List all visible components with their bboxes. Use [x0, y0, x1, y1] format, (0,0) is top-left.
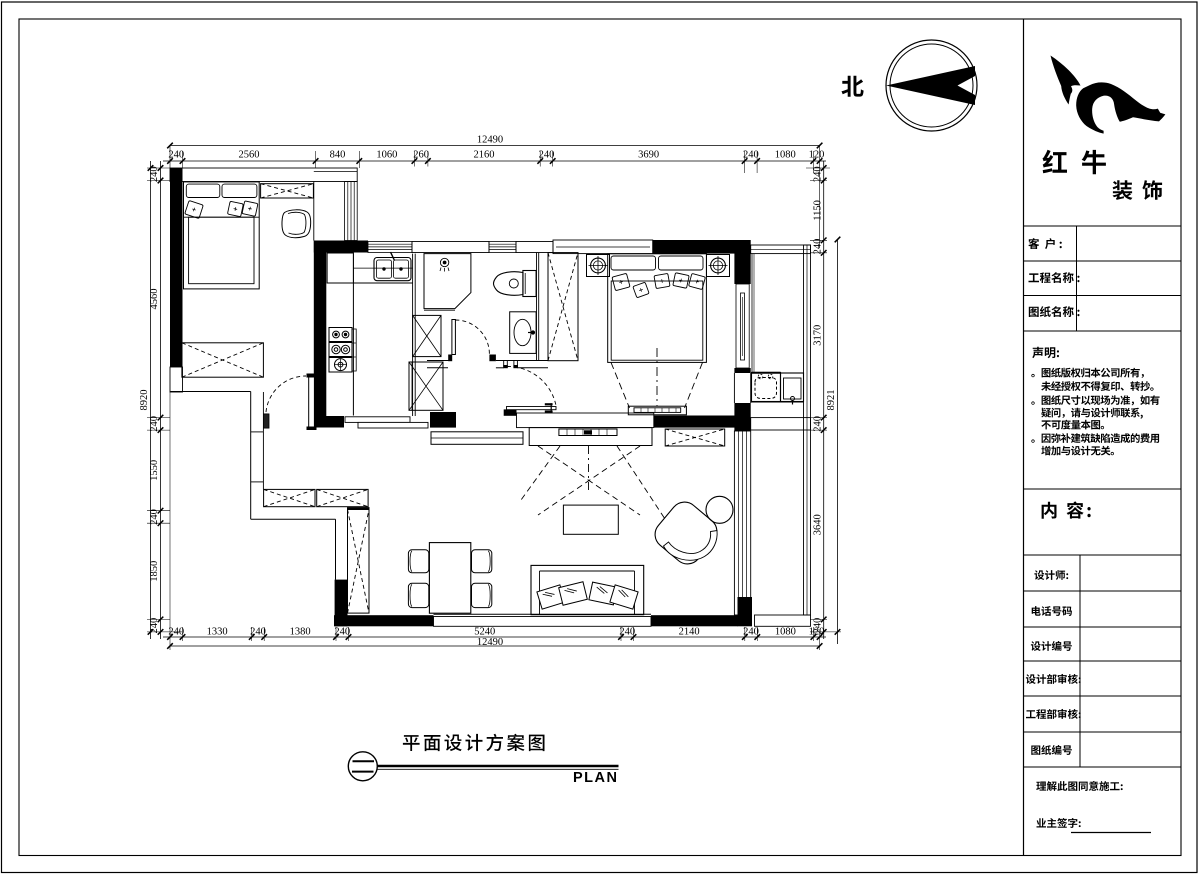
svg-text:12490: 12490	[477, 135, 503, 146]
svg-text:240: 240	[168, 150, 184, 161]
svg-text:840: 840	[330, 150, 346, 161]
svg-text:1080: 1080	[775, 627, 796, 638]
svg-text:3640: 3640	[812, 514, 823, 535]
svg-text:240: 240	[812, 166, 823, 182]
svg-text:1080: 1080	[775, 150, 796, 161]
svg-text:240: 240	[250, 627, 266, 638]
svg-text:5240: 5240	[474, 627, 495, 638]
svg-text:1060: 1060	[376, 150, 397, 161]
svg-text:240: 240	[812, 618, 823, 634]
svg-text:8921: 8921	[826, 390, 837, 411]
svg-text:240: 240	[812, 416, 823, 432]
svg-text:8920: 8920	[139, 390, 150, 411]
svg-text:2160: 2160	[474, 150, 495, 161]
svg-text:240: 240	[334, 627, 350, 638]
svg-text:1380: 1380	[290, 627, 311, 638]
svg-text:1150: 1150	[812, 200, 823, 221]
svg-text:3170: 3170	[812, 325, 823, 346]
svg-text:240: 240	[743, 627, 759, 638]
svg-text:120: 120	[809, 150, 825, 161]
svg-text:240: 240	[812, 239, 823, 255]
svg-text:240: 240	[539, 150, 555, 161]
svg-text:PLAN: PLAN	[573, 770, 618, 786]
svg-text:2560: 2560	[239, 150, 260, 161]
svg-text:12490: 12490	[477, 637, 503, 648]
svg-text:240: 240	[619, 627, 635, 638]
svg-text:240: 240	[743, 150, 759, 161]
svg-text:260: 260	[413, 150, 429, 161]
svg-text:3690: 3690	[638, 150, 659, 161]
svg-text:2140: 2140	[679, 627, 700, 638]
svg-text:1330: 1330	[207, 627, 228, 638]
